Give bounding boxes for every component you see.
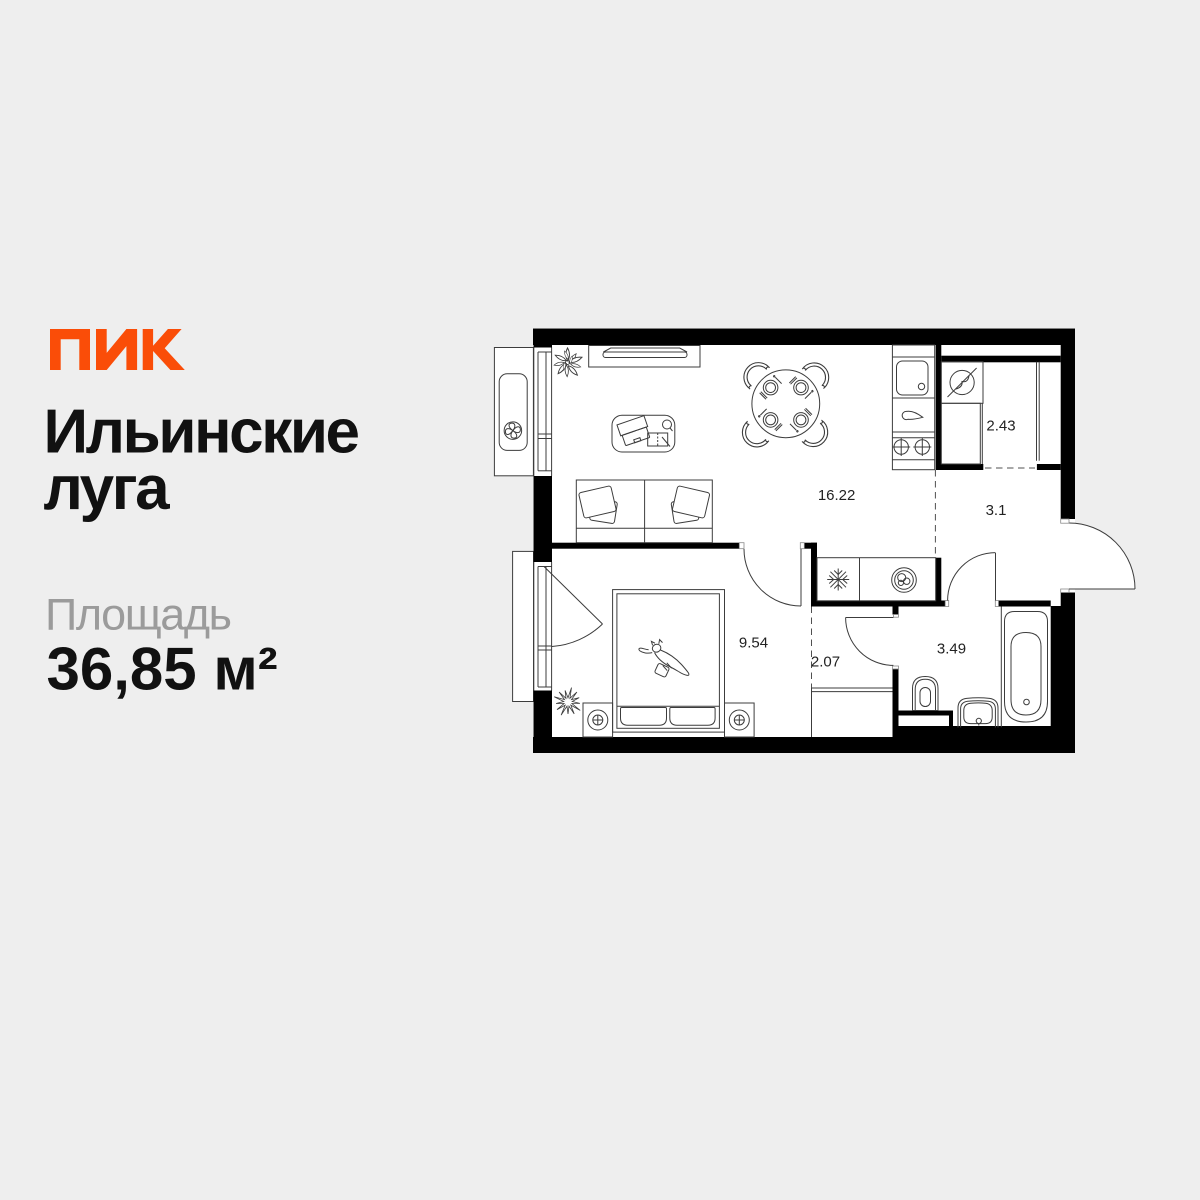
svg-text:16.22: 16.22 — [818, 487, 856, 504]
svg-text:9.54: 9.54 — [739, 635, 768, 652]
svg-text:3.1: 3.1 — [986, 502, 1007, 519]
svg-text:Площадь: Площадь — [45, 589, 231, 640]
svg-text:луга: луга — [44, 454, 171, 523]
svg-text:3.49: 3.49 — [937, 640, 966, 657]
svg-text:2.07: 2.07 — [811, 654, 840, 671]
svg-text:36,85 м²: 36,85 м² — [47, 636, 278, 703]
svg-text:2.43: 2.43 — [986, 418, 1015, 435]
